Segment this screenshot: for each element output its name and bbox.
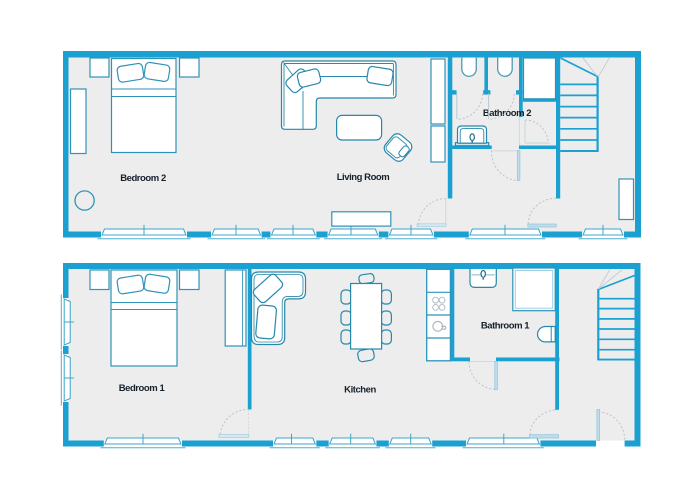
svg-text:Bedroom 1: Bedroom 1 — [119, 383, 166, 394]
svg-text:Living Room: Living Room — [337, 172, 390, 183]
svg-text:Bathroom 2: Bathroom 2 — [483, 108, 531, 119]
svg-text:Bathroom 1: Bathroom 1 — [481, 321, 530, 332]
svg-text:Bedroom 2: Bedroom 2 — [120, 173, 166, 184]
svg-text:Kitchen: Kitchen — [344, 385, 376, 396]
